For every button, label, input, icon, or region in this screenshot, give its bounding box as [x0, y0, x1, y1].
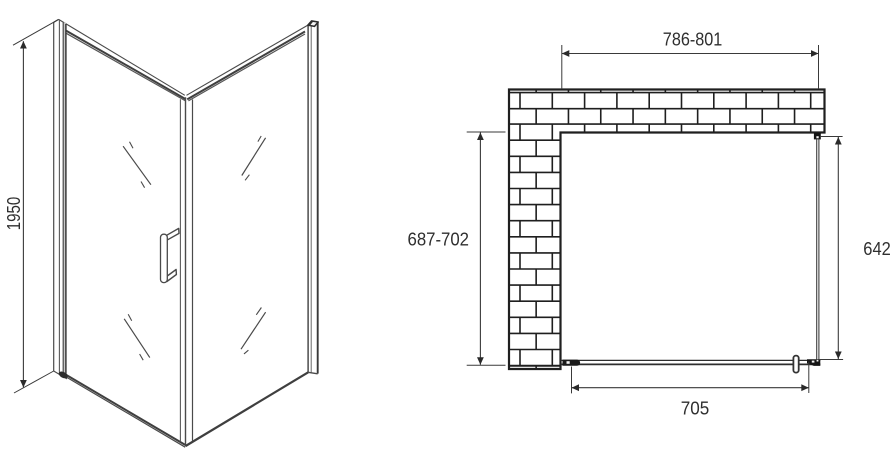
svg-text:705: 705: [681, 398, 710, 418]
svg-text:687-702: 687-702: [408, 229, 470, 249]
svg-text:786-801: 786-801: [663, 29, 723, 49]
svg-text:642: 642: [863, 239, 891, 259]
svg-text:1950: 1950: [4, 197, 24, 231]
